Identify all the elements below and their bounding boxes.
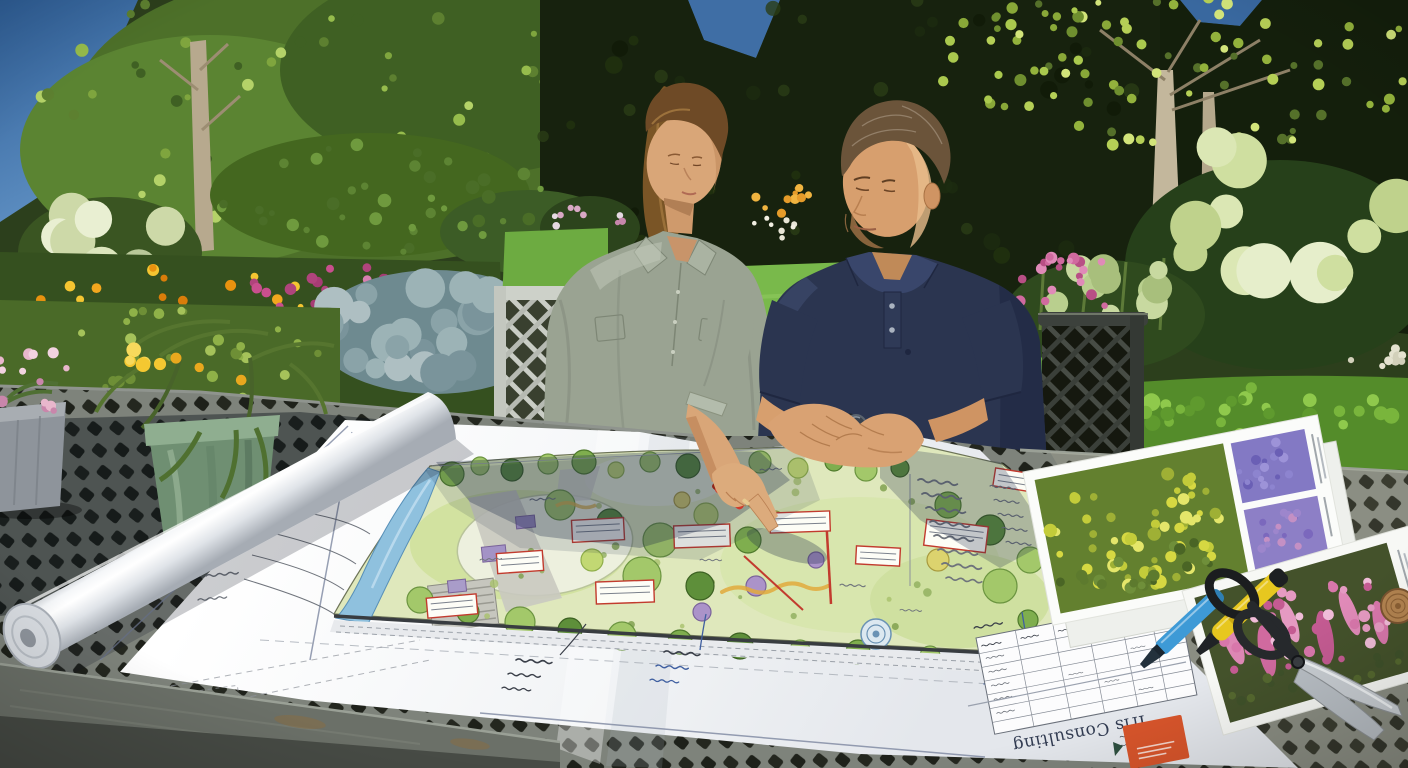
garden-consultation-photo: Iris Consulting bbox=[0, 0, 1408, 768]
vignette bbox=[0, 0, 1408, 768]
scene-canvas: Iris Consulting bbox=[0, 0, 1408, 768]
